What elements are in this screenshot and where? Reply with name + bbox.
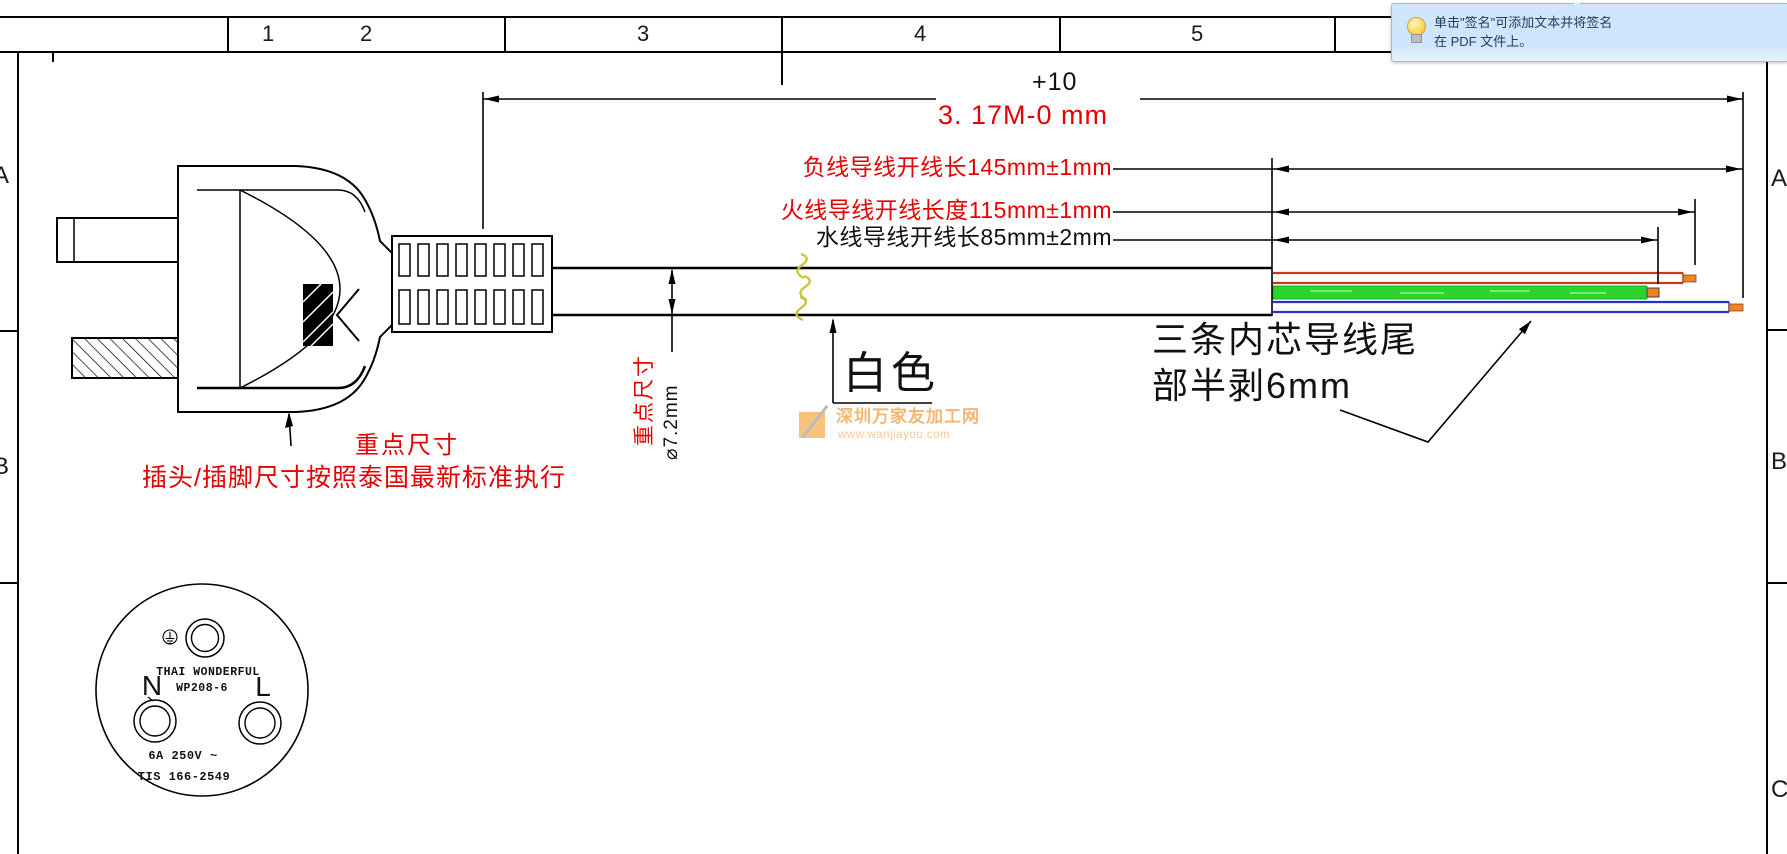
grid-row-a-left: A <box>0 164 9 188</box>
total-dim-upper-tolerance: +10 <box>1032 70 1077 95</box>
label-cable-color-white: 白色 <box>843 352 939 396</box>
grid-row-c-right: C <box>1771 778 1787 802</box>
wire-brown-bare-tip <box>1683 275 1696 282</box>
grid-col-2: 2 <box>360 23 372 45</box>
total-dim-value: 3. 17M-0 mm <box>938 102 1108 129</box>
watermark-url: www.wanjiayou.com <box>838 430 950 442</box>
plug-face-neutral-label: N <box>142 672 162 700</box>
tooltip-text: 单击"签名"可添加文本并将签名 在 PDF 文件上。 <box>1434 13 1612 51</box>
earth-symbol-icon <box>163 630 177 644</box>
note-water-wire-length: 水线导线开线长85mm±2mm <box>700 226 1112 249</box>
grid-row-a-right: A <box>1771 167 1787 191</box>
grid-col-1: 1 <box>262 23 274 45</box>
note-live-wire-length: 火线导线开线长度115mm±1mm <box>700 199 1112 222</box>
drawing-canvas <box>0 0 1787 854</box>
plug-face-model: WP208-6 <box>176 683 228 695</box>
lightbulb-icon <box>1404 17 1428 47</box>
note-thai-standard: 插头/插脚尺寸按照泰国最新标准执行 <box>142 466 566 491</box>
wire-blue-bare-tip <box>1729 304 1743 311</box>
note-cable-diameter: ⌀7.2mm <box>662 384 681 460</box>
wire-blue <box>1273 302 1743 312</box>
plug-body <box>178 166 392 412</box>
wire-green <box>1273 286 1659 299</box>
plug-face-brand: THAI WONDERFUL <box>156 667 260 679</box>
watermark-name: 深圳万家友加工网 <box>836 408 980 425</box>
plug-face-rating: 6A 250V ~ <box>148 750 217 762</box>
note-strip-line2: 部半剥6mm <box>1152 368 1352 404</box>
note-key-dimension: 重点尺寸 <box>355 434 459 458</box>
plug-face-live-label: L <box>255 673 271 701</box>
tooltip-line2: 在 PDF 文件上。 <box>1434 32 1612 51</box>
grid-col-5: 5 <box>1191 23 1203 45</box>
note-strip-line1: 三条内芯导线尾 <box>1152 322 1418 358</box>
cable-break-squiggles <box>796 254 809 320</box>
tooltip-line1: 单击"签名"可添加文本并将签名 <box>1434 13 1612 32</box>
strain-relief <box>392 236 552 332</box>
cable-jacket <box>552 268 1272 315</box>
wire-brown <box>1273 273 1696 283</box>
pdf-drawing-page: 1 2 3 4 5 A B A B C +10 3. 17M-0 mm 负线导线… <box>0 0 1787 854</box>
grid-row-b-left: B <box>0 455 9 479</box>
grid-row-b-right: B <box>1771 450 1787 474</box>
grid-col-3: 3 <box>637 23 649 45</box>
grid-col-4: 4 <box>914 23 926 45</box>
note-key-dimension-vertical: 重点尺寸 <box>634 354 655 446</box>
note-neutral-wire-length: 负线导线开线长145mm±1mm <box>700 156 1112 179</box>
signature-hint-tooltip[interactable]: ˆ 单击"签名"可添加文本并将签名 在 PDF 文件上。 <box>1391 3 1787 62</box>
wire-green-bare-tip <box>1647 288 1659 297</box>
plug-face-standard: TIS 166-2549 <box>138 771 230 783</box>
plug-pins <box>57 218 180 378</box>
